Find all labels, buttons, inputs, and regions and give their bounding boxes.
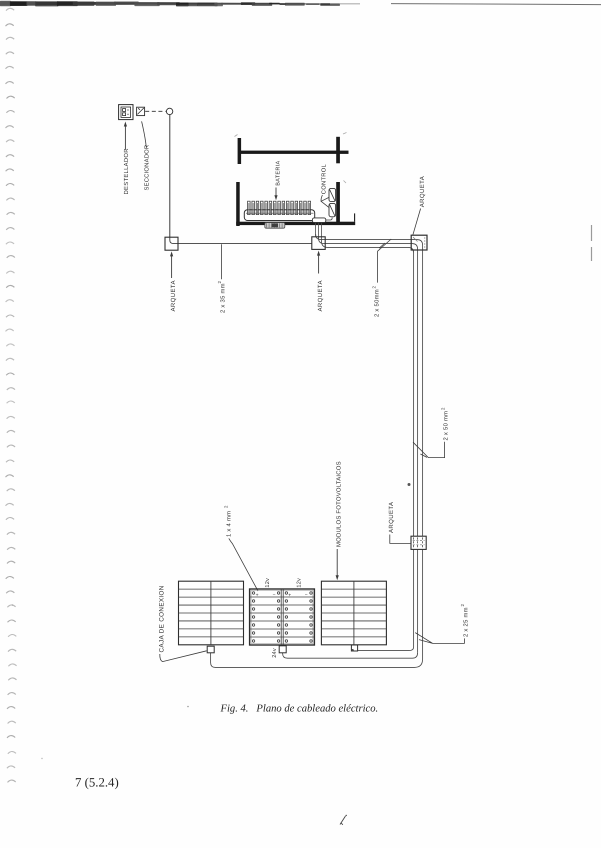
svg-text:2: 2 (371, 286, 376, 289)
svg-text:12v: 12v (296, 578, 302, 588)
svg-text:−: − (273, 592, 276, 598)
svg-text:2 x 50 mm: 2 x 50 mm (443, 411, 450, 441)
svg-text:ARQUETA: ARQUETA (170, 279, 177, 311)
svg-text:MODULOS FOTOVOLTAICOS: MODULOS FOTOVOLTAICOS (335, 461, 342, 547)
svg-text:1 x 4 mm: 1 x 4 mm (226, 511, 233, 537)
svg-text:2: 2 (440, 407, 445, 410)
svg-text:2 x 50mm: 2 x 50mm (374, 289, 381, 317)
svg-text:12v: 12v (265, 578, 271, 588)
svg-text:DESTELLADOR: DESTELLADOR (123, 148, 130, 194)
svg-text:2: 2 (460, 604, 465, 607)
svg-text:7 (5.2.4): 7 (5.2.4) (75, 776, 119, 790)
svg-text:24v: 24v (272, 648, 278, 658)
svg-text:CONTROL: CONTROL (321, 164, 328, 195)
svg-text:ARQUETA: ARQUETA (388, 501, 395, 533)
svg-text:ARQUETA: ARQUETA (419, 175, 426, 207)
svg-text:2: 2 (217, 281, 222, 284)
svg-text:2 x 25 mm: 2 x 25 mm (462, 607, 469, 637)
svg-text:+: + (288, 593, 291, 599)
svg-text:Fig. 4. Plano de cableado el: Fig. 4. Plano de cableado eléctrico. (220, 704, 379, 715)
svg-text:+: + (256, 593, 259, 599)
svg-text:CAJA DE CONEXION: CAJA DE CONEXION (158, 585, 165, 652)
svg-text:2 x 35 mm: 2 x 35 mm (219, 283, 226, 313)
svg-text:SECCIONADOR: SECCIONADOR (144, 145, 151, 191)
svg-text:ARQUETA: ARQUETA (317, 279, 324, 311)
svg-text:−: − (305, 592, 308, 598)
svg-text:BATERIA: BATERIA (275, 160, 281, 185)
svg-text:2: 2 (223, 505, 228, 508)
